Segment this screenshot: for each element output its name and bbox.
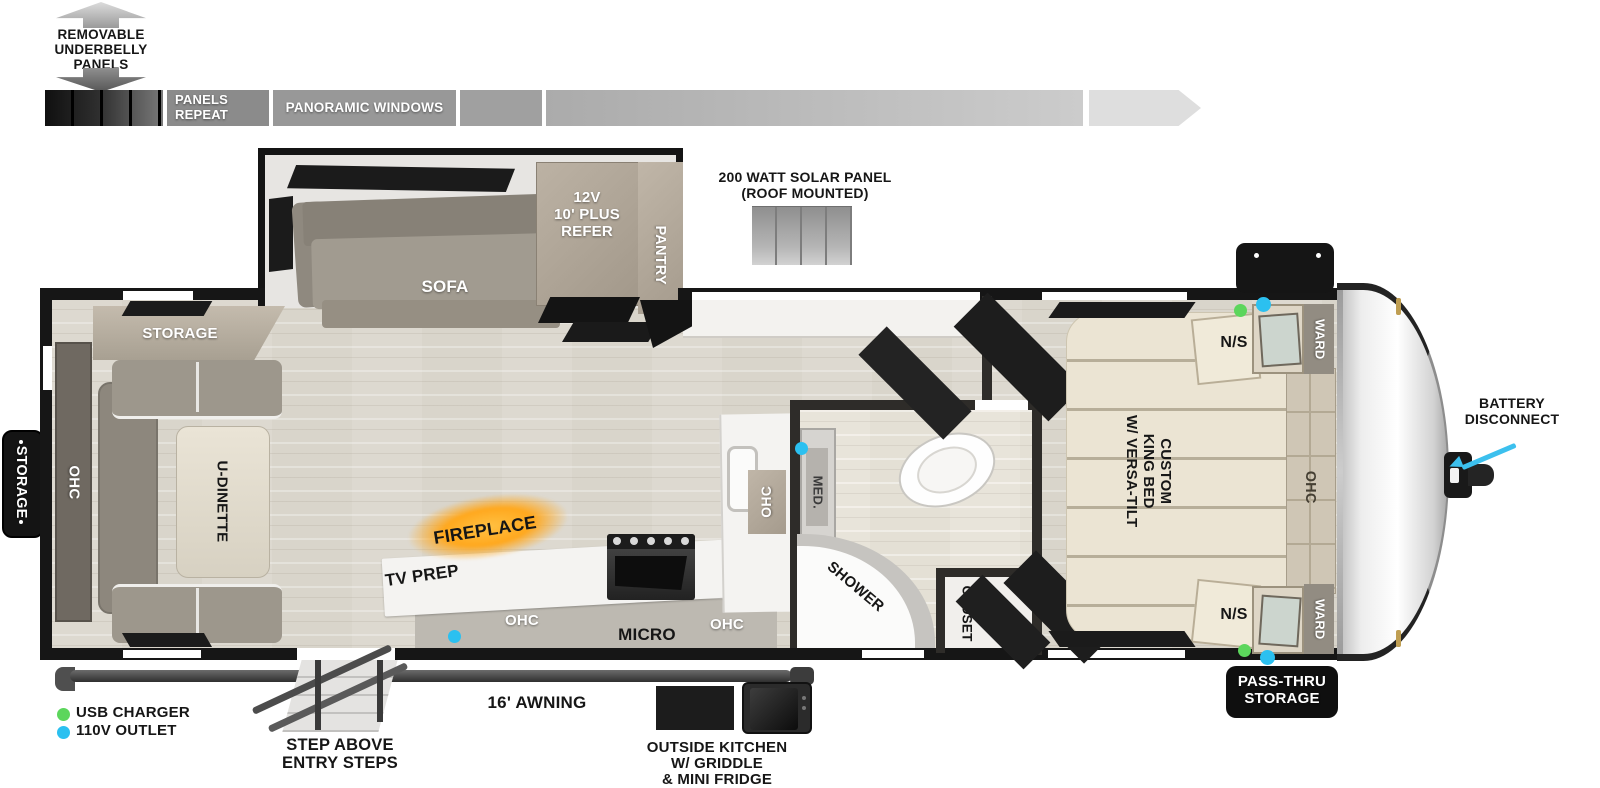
rear-bottom-vent [122, 633, 212, 647]
110v-outlet-dot [1260, 650, 1275, 665]
u-dinette-label: U-DINETTE [213, 441, 230, 561]
pass-thru-label: PASS-THRU STORAGE [1226, 674, 1338, 708]
window-opening [43, 346, 52, 390]
wardrobe-top-mirror [1258, 313, 1302, 368]
screw-dot [1254, 253, 1259, 258]
knob [613, 537, 621, 545]
micro-label: MICRO [597, 625, 697, 644]
underbelly-panel-strip [45, 90, 163, 126]
tv-ohc-label: OHC [482, 613, 562, 630]
knob [681, 537, 689, 545]
legend-usb-label: USB CHARGER [76, 705, 226, 722]
entry-steps-label: STEP ABOVE ENTRY STEPS [250, 736, 430, 773]
slideout-step-wedge [538, 297, 640, 323]
window-opening [123, 650, 201, 658]
110v-outlet-dot [57, 726, 70, 739]
solar-panel-graphic [752, 206, 852, 265]
cap-hinge [1396, 298, 1401, 315]
usb-charger-dot [57, 708, 70, 721]
awning-label: 16' AWNING [457, 693, 617, 712]
dinette-cushion-divider [196, 588, 199, 638]
steps-leg [315, 660, 321, 730]
rear-storage-label: STORAGE [115, 326, 245, 343]
window-opening [1042, 292, 1187, 300]
front-cap-seam [1337, 290, 1343, 654]
knob [630, 537, 638, 545]
outside-griddle [656, 686, 734, 730]
panoramic-windows-label: PANORAMIC WINDOWS [273, 100, 456, 115]
rv-floorplan-diagram: REMOVABLE UNDERBELLY PANELS PANELS REPEA… [0, 0, 1600, 788]
bar-segment-long [546, 90, 1083, 126]
window-opening [692, 292, 980, 300]
king-bed-label: CUSTOM KING BED W/ VERSA-TILT [1123, 366, 1173, 576]
screw-dot [1316, 253, 1321, 258]
solar-panel-note: 200 WATT SOLAR PANEL (ROOF MOUNTED) [660, 170, 950, 201]
110v-outlet-dot [1256, 297, 1271, 312]
rear-wall [40, 288, 52, 660]
bar-segment [460, 90, 542, 126]
refrigerator-label: 12V 10' PLUS REFER [536, 190, 638, 240]
steps-leg [377, 660, 383, 722]
window-opening [1048, 650, 1185, 658]
wardrobe-bottom-label: WARD [1312, 588, 1327, 650]
usb-charger-dot [1234, 304, 1247, 317]
bar-arrow-end [1089, 90, 1201, 126]
closet-left-wall [936, 568, 945, 653]
panels-repeat-label: PANELS REPEAT [175, 93, 265, 122]
dinette-cushion-divider [196, 362, 199, 412]
usb-charger-dot [1238, 644, 1251, 657]
outside-kitchen-label: OUTSIDE KITCHEN W/ GRIDDLE & MINI FRIDGE [622, 740, 812, 788]
bed-ohc-label: OHC [1302, 460, 1318, 514]
110v-outlet-dot [795, 442, 808, 455]
pantry-label: PANTRY [652, 215, 668, 295]
legend-outlet-label: 110V OUTLET [76, 723, 226, 740]
sofa-front [322, 300, 560, 328]
fridge-handle-dot [802, 696, 806, 700]
arrow-up-icon [56, 2, 146, 28]
window-opening [862, 650, 924, 658]
slideout-side-window [269, 196, 293, 272]
front-cap [1337, 283, 1449, 661]
slideout-step-wedge-2 [562, 322, 660, 342]
awning-rail [70, 670, 792, 682]
rear-ohc-label: OHC [65, 452, 82, 512]
cap-hinge [1396, 630, 1401, 647]
counter-ohc-label: OHC [759, 474, 775, 530]
rear-top-vent [122, 301, 213, 316]
wardrobe-bottom-mirror [1258, 595, 1301, 648]
underbelly-note: REMOVABLE UNDERBELLY PANELS [40, 27, 162, 72]
mini-fridge-door [750, 688, 798, 730]
110v-outlet-dot [448, 630, 461, 643]
fridge-handle-dot [802, 706, 806, 710]
bedroom-window-top [1048, 302, 1195, 318]
cooktop-window [615, 556, 687, 590]
slideout-window [287, 165, 515, 192]
tongue-box [1236, 243, 1334, 293]
bedroom-window-bottom [1048, 631, 1195, 647]
knob [664, 537, 672, 545]
hitch-arm [1468, 464, 1494, 486]
window-opening [123, 291, 193, 300]
wardrobe-top-label: WARD [1312, 308, 1327, 370]
kitchen-ohc-label: OHC [688, 617, 766, 634]
sofa-seat [311, 233, 561, 309]
bath-door-opening [975, 400, 1028, 410]
hall-wall-face [683, 300, 983, 338]
knob [647, 537, 655, 545]
med-label: MED. [810, 462, 825, 522]
sofa-label: SOFA [400, 277, 490, 296]
battery-disconnect-label: BATTERY DISCONNECT [1448, 396, 1576, 427]
exterior-storage-label: STORAGE [13, 434, 29, 530]
